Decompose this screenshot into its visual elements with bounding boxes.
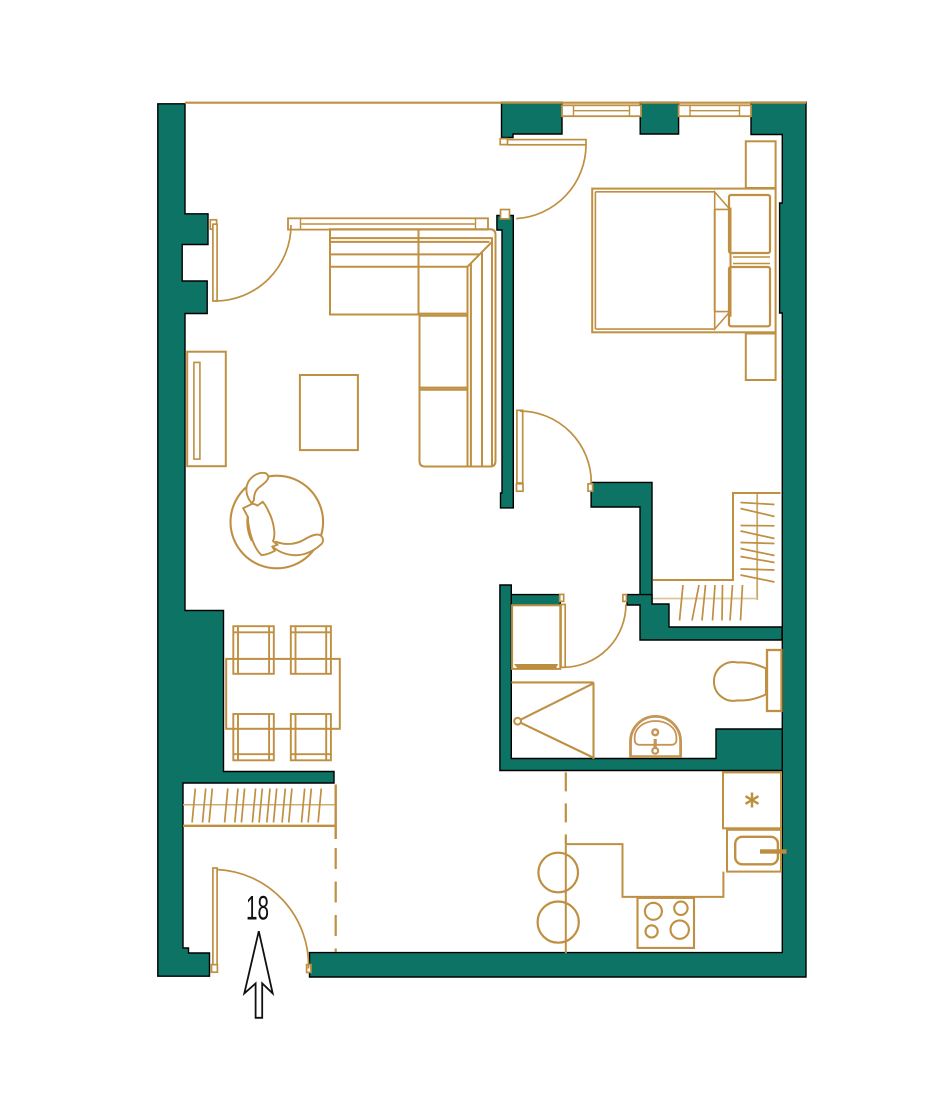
svg-text:18: 18: [246, 890, 269, 928]
